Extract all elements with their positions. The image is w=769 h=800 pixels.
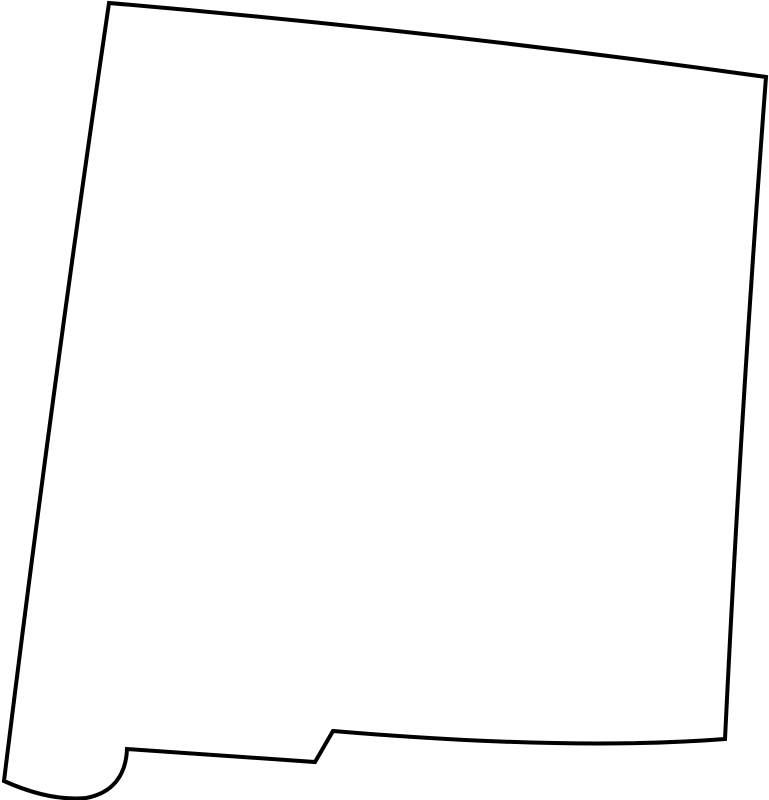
- new-mexico-map: [0, 0, 769, 800]
- state-outline: [4, 3, 766, 799]
- map-stage: [0, 0, 769, 800]
